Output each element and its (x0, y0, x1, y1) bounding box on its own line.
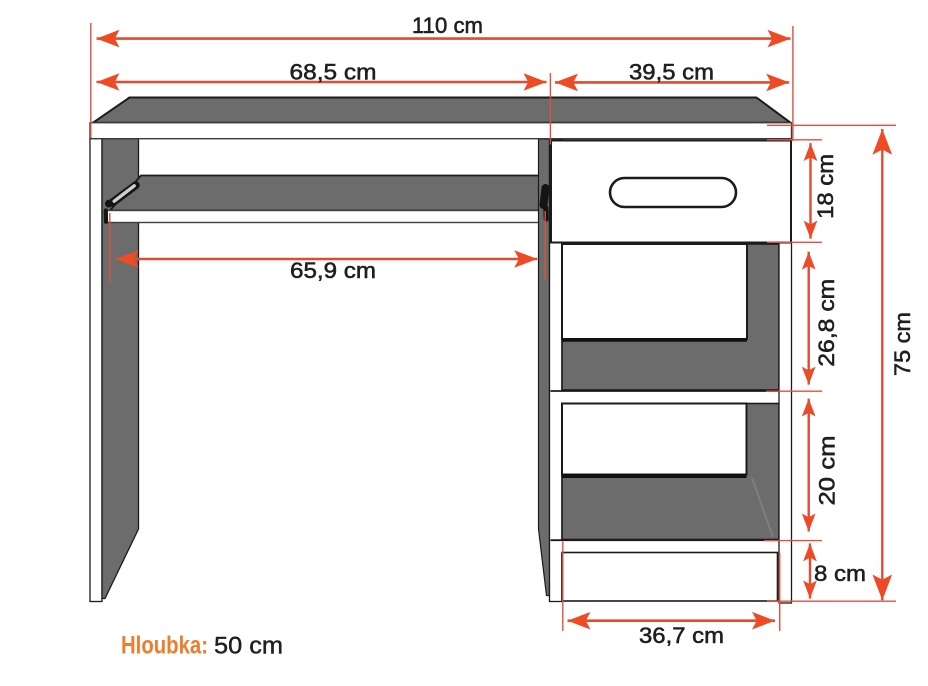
svg-text:26,8 cm: 26,8 cm (814, 279, 839, 367)
svg-text:39,5 cm: 39,5 cm (629, 60, 714, 85)
svg-text:50 cm: 50 cm (214, 633, 283, 660)
svg-text:75 cm: 75 cm (890, 312, 915, 376)
svg-text:18 cm: 18 cm (813, 154, 838, 219)
svg-text:36,7 cm: 36,7 cm (639, 623, 724, 648)
svg-text:65,9 cm: 65,9 cm (290, 258, 376, 283)
svg-text:68,5 cm: 68,5 cm (290, 60, 377, 85)
svg-text:Hloubka:: Hloubka: (121, 632, 208, 660)
svg-text:110 cm: 110 cm (412, 13, 483, 38)
svg-text:8 cm: 8 cm (814, 561, 866, 586)
svg-text:20 cm: 20 cm (815, 436, 840, 506)
